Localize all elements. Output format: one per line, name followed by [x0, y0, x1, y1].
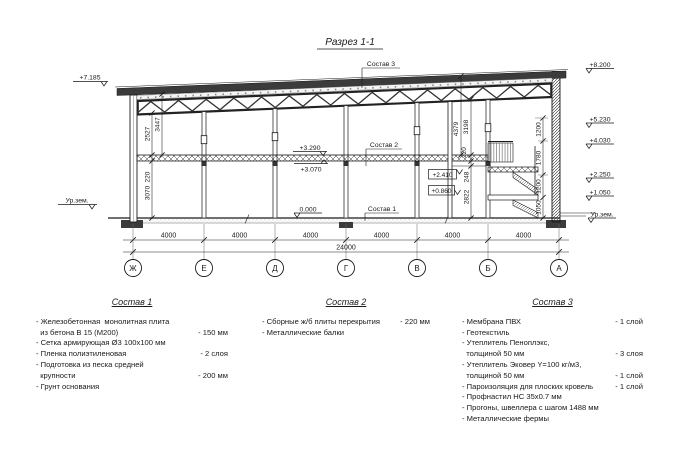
list-item: - Утеплитель Эковер Y=100 кг/м3,: [462, 360, 643, 371]
composition-list-3: Состав 3 - Мембрана ПВХ- 1 слой - Геотек…: [462, 297, 643, 425]
list-item: - Металлические балки: [262, 328, 430, 339]
list-item: - Грунт основания: [36, 382, 228, 393]
svg-text:Состав 3: Состав 3: [367, 61, 395, 68]
axis-bubble-v: В: [409, 260, 426, 277]
list-item: - Прогоны, швеллера с шагом 1488 мм: [462, 403, 643, 414]
list-item: - Подготовка из песка средней: [36, 360, 228, 371]
svg-text:2822: 2822: [464, 189, 471, 204]
axis-bubble-zh: Ж: [125, 260, 142, 277]
level-flag-icon: [586, 144, 592, 149]
svg-text:3447: 3447: [155, 117, 162, 132]
level-flag-icon: [89, 205, 95, 210]
svg-text:4000: 4000: [374, 233, 390, 240]
svg-text:+3.290: +3.290: [300, 145, 321, 152]
list-item: - Сетка армирующая Ø3 100х100 мм: [36, 338, 228, 349]
axis-bubble-d: Д: [267, 260, 284, 277]
composition-2-title: Состав 2: [262, 297, 430, 308]
stair: [488, 142, 538, 219]
level-flag-icon: [586, 123, 592, 128]
svg-text:+3.070: +3.070: [301, 167, 322, 174]
level-flag-icon: [455, 190, 461, 195]
svg-text:+2.250: +2.250: [590, 172, 611, 179]
axis-bubble-b: Б: [480, 260, 497, 277]
level-flag-icon: [101, 82, 107, 87]
elevation-mark-zero: 0.000: [294, 207, 322, 218]
composition-list-1: Состав 1 - Железобетонная монолитная пли…: [36, 297, 228, 392]
svg-text:3070: 3070: [145, 185, 152, 200]
svg-text:1200: 1200: [536, 179, 543, 194]
level-flag-icon: [586, 178, 592, 183]
svg-text:+4.030: +4.030: [590, 138, 611, 145]
svg-text:220: 220: [461, 147, 468, 158]
svg-text:4000: 4000: [516, 233, 532, 240]
svg-text:4000: 4000: [303, 233, 319, 240]
elevation-mark-stair-lower: +0.860: [429, 186, 461, 196]
svg-text:4000: 4000: [445, 233, 461, 240]
svg-text:Б: Б: [485, 264, 490, 273]
level-flag-icon: [294, 213, 300, 218]
list-item: - Профнастил НС 35х0.7 мм: [462, 392, 643, 403]
elevation-mark-right-ground: Ур.зем.: [588, 212, 616, 223]
svg-text:+1.050: +1.050: [590, 190, 611, 197]
list-item: - Геотекстиль: [462, 328, 643, 339]
list-item: - Пленка полиэтиленовая- 2 слоя: [36, 349, 228, 360]
level-flag-icon: [588, 218, 594, 223]
list-item: из бетона В 15 (М200)- 150 мм: [36, 328, 228, 339]
elevation-mark-right-2: +5.230: [586, 117, 614, 128]
svg-text:Ж: Ж: [129, 264, 137, 273]
elevation-mark-left-ground: Ур.зем.: [58, 198, 97, 210]
svg-text:220: 220: [145, 171, 152, 182]
axis-bubble-g: Г: [338, 260, 355, 277]
list-item: толщиной 50 мм- 1 слой: [462, 371, 643, 382]
svg-text:Е: Е: [201, 264, 206, 273]
structural-grid-columns: [130, 73, 562, 259]
level-flag-icon: [586, 69, 592, 74]
elevation-mark-right-4: +2.250: [586, 172, 614, 183]
elevation-mark-right-5: +1.050: [586, 190, 614, 201]
elevation-mark-floor-top: +3.290: [293, 145, 327, 156]
svg-text:Ур.зем.: Ур.зем.: [65, 198, 88, 205]
svg-text:Разрез 1-1: Разрез 1-1: [325, 37, 375, 48]
axis-bubbles: Ж Е Д Г В Б А: [125, 260, 568, 277]
axis-bubble-a: А: [551, 260, 568, 277]
list-item: крупности- 200 мм: [36, 371, 228, 382]
svg-text:4379: 4379: [453, 121, 460, 136]
svg-text:+5.230: +5.230: [590, 117, 611, 124]
list-item: - Утеплитель Пеноплэкс,: [462, 338, 643, 349]
svg-text:3198: 3198: [463, 119, 470, 134]
elevation-mark-stair-upper: +2.410: [429, 170, 463, 180]
svg-text:248: 248: [464, 171, 471, 182]
right-wall: [552, 72, 560, 223]
svg-text:+7.185: +7.185: [80, 75, 101, 82]
elevation-mark-right-1: +8.200: [586, 62, 614, 73]
svg-text:Г: Г: [344, 264, 349, 273]
composition-1-title: Состав 1: [36, 297, 228, 308]
svg-text:В: В: [414, 264, 419, 273]
svg-text:4000: 4000: [232, 233, 248, 240]
svg-text:24000: 24000: [336, 245, 356, 252]
list-item: - Сборные ж/б плиты перекрытия- 220 мм: [262, 317, 430, 328]
svg-text:0.000: 0.000: [299, 207, 316, 214]
drawing-sheet: Разрез 1-1: [0, 0, 700, 474]
svg-text:Д: Д: [272, 264, 278, 273]
level-flag-icon: [457, 170, 463, 175]
svg-text:1200: 1200: [536, 122, 543, 137]
elevation-mark-floor-bottom: +3.070: [294, 160, 328, 174]
composition-3-title: Состав 3: [462, 297, 643, 308]
level-flag-icon: [586, 196, 592, 201]
floor-slab: [137, 155, 488, 161]
svg-text:Ур.зем.: Ур.зем.: [590, 212, 613, 219]
svg-text:Состав 2: Состав 2: [370, 142, 398, 149]
section-drawing: Разрез 1-1: [0, 0, 700, 295]
list-item: толщиной 50 мм- 3 слоя: [462, 349, 643, 360]
svg-text:2527: 2527: [145, 126, 152, 141]
list-item: - Мембрана ПВХ- 1 слой: [462, 317, 643, 328]
svg-text:1780: 1780: [536, 150, 543, 165]
ground-floor-slab: [108, 213, 596, 224]
callout-comp2: Состав 2: [366, 142, 402, 166]
list-item: - Железобетонная монолитная плита: [36, 317, 228, 328]
partition-wall: [448, 102, 452, 219]
axis-bubble-e: Е: [196, 260, 213, 277]
svg-text:+2.410: +2.410: [432, 172, 452, 179]
elevation-mark-right-3: +4.030: [586, 138, 614, 149]
svg-text:4000: 4000: [161, 233, 177, 240]
composition-list-2: Состав 2 - Сборные ж/б плиты перекрытия-…: [262, 297, 430, 338]
svg-text:1050: 1050: [536, 200, 543, 215]
list-item: - Пароизоляция для плоских кровель- 1 сл…: [462, 382, 643, 393]
drawing-title: Разрез 1-1: [317, 37, 383, 49]
stair-railing: [488, 143, 513, 162]
list-item: - Металлические фермы: [462, 414, 643, 425]
elevation-mark-left-top: +7.185: [73, 75, 108, 87]
svg-text:Состав 1: Состав 1: [368, 206, 396, 213]
svg-text:+0.860: +0.860: [431, 188, 451, 195]
svg-text:А: А: [556, 264, 562, 273]
svg-text:+8.200: +8.200: [590, 62, 611, 69]
